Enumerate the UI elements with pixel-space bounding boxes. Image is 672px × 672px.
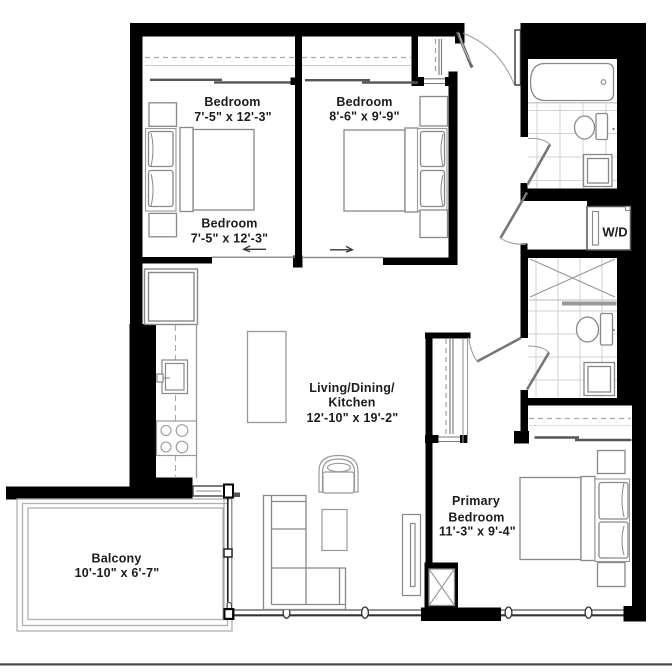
svg-text:Bedroom: Bedroom bbox=[201, 217, 257, 231]
svg-text:W/D: W/D bbox=[602, 225, 627, 240]
svg-text:8'-6" x 9'-9": 8'-6" x 9'-9" bbox=[329, 110, 399, 124]
svg-text:7'-5" x 12'-3": 7'-5" x 12'-3" bbox=[191, 232, 269, 246]
svg-text:Bedroom: Bedroom bbox=[204, 95, 260, 109]
svg-text:12'-10" x 19'-2": 12'-10" x 19'-2" bbox=[307, 411, 399, 425]
svg-text:Bedroom: Bedroom bbox=[448, 511, 504, 525]
svg-text:Kitchen: Kitchen bbox=[328, 396, 375, 410]
svg-text:10'-10" x 6'-7": 10'-10" x 6'-7" bbox=[75, 566, 160, 580]
svg-text:11'-3" x 9'-4": 11'-3" x 9'-4" bbox=[439, 525, 516, 539]
svg-text:Bedroom: Bedroom bbox=[336, 95, 392, 109]
svg-text:Balcony: Balcony bbox=[91, 552, 141, 566]
svg-text:Primary: Primary bbox=[452, 494, 500, 508]
svg-text:7'-5" x 12'-3": 7'-5" x 12'-3" bbox=[194, 110, 272, 124]
svg-text:Living/Dining/: Living/Dining/ bbox=[309, 381, 395, 395]
